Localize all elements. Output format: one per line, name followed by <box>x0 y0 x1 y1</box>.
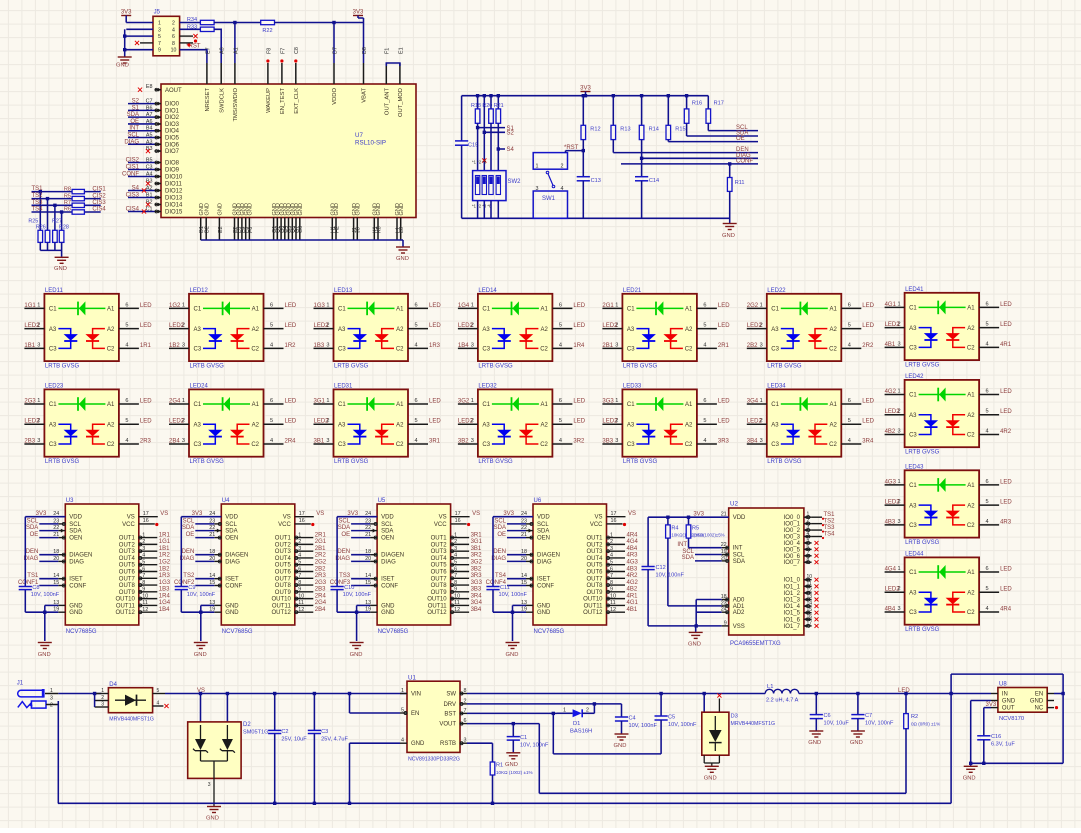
svg-text:A1: A1 <box>541 402 549 408</box>
svg-text:9: 9 <box>142 587 145 593</box>
svg-text:F1: F1 <box>385 48 391 54</box>
svg-text:SDA: SDA <box>127 112 139 118</box>
svg-text:7: 7 <box>454 573 457 579</box>
svg-text:C3: C3 <box>771 347 779 353</box>
svg-text:3: 3 <box>454 546 457 552</box>
svg-text:13: 13 <box>807 594 813 600</box>
svg-text:OUT1: OUT1 <box>586 536 603 542</box>
svg-text:6: 6 <box>559 398 562 404</box>
svg-text:LED42: LED42 <box>905 374 924 380</box>
svg-text:AOUT: AOUT <box>165 88 182 94</box>
svg-text:LRTB GVSG: LRTB GVSG <box>767 459 802 465</box>
svg-text:OE: OE <box>186 532 195 538</box>
svg-text:6: 6 <box>172 34 175 40</box>
svg-text:2R1: 2R1 <box>315 532 327 538</box>
svg-text:7: 7 <box>464 708 467 714</box>
svg-text:LRTB GVSG: LRTB GVSG <box>190 459 225 465</box>
svg-text:OUT8: OUT8 <box>431 583 448 589</box>
svg-text:3B2: 3B2 <box>458 439 469 445</box>
svg-text:11: 11 <box>610 600 616 606</box>
svg-text:VOUT: VOUT <box>439 722 456 728</box>
svg-text:C9: C9 <box>188 585 195 591</box>
svg-text:4: 4 <box>270 342 273 348</box>
svg-text:5: 5 <box>703 418 706 424</box>
svg-text:3V3: 3V3 <box>580 86 591 92</box>
svg-text:DIAG: DIAG <box>225 559 240 565</box>
svg-text:4: 4 <box>414 342 417 348</box>
svg-text:LED34: LED34 <box>767 383 786 389</box>
svg-text:GND: GND <box>1002 699 1016 705</box>
svg-text:GND: GND <box>722 233 735 239</box>
svg-text:A1: A1 <box>541 307 549 313</box>
svg-text:LRTB GVSG: LRTB GVSG <box>45 364 80 370</box>
svg-text:LRTB GVSG: LRTB GVSG <box>623 364 658 370</box>
svg-text:R4: R4 <box>671 526 678 532</box>
svg-text:10: 10 <box>610 593 616 599</box>
svg-text:6: 6 <box>986 566 989 572</box>
svg-text:LED: LED <box>1000 409 1012 415</box>
svg-text:A3: A3 <box>49 327 57 333</box>
svg-text:8: 8 <box>464 688 467 694</box>
svg-text:10: 10 <box>171 48 177 54</box>
svg-text:2B3: 2B3 <box>315 587 326 593</box>
svg-text:3: 3 <box>298 546 301 552</box>
svg-text:1B1: 1B1 <box>24 343 35 349</box>
svg-text:LED: LED <box>140 419 152 425</box>
svg-text:4: 4 <box>157 700 160 706</box>
svg-text:INT: INT <box>733 546 743 552</box>
svg-text:1: 1 <box>807 512 810 518</box>
svg-text:4R3: 4R3 <box>1000 519 1012 525</box>
svg-text:DIO0: DIO0 <box>165 102 180 108</box>
svg-text:IN: IN <box>1002 692 1008 698</box>
svg-text:6: 6 <box>125 302 128 308</box>
svg-text:3: 3 <box>897 606 900 612</box>
svg-text:5: 5 <box>986 586 989 592</box>
svg-text:6: 6 <box>464 718 467 724</box>
svg-text:NCV891330PD33R2G: NCV891330PD33R2G <box>408 757 460 763</box>
svg-text:6: 6 <box>848 302 851 308</box>
svg-text:OUT4: OUT4 <box>275 556 292 562</box>
svg-text:IO1_3: IO1_3 <box>784 598 801 604</box>
svg-text:R22: R22 <box>262 28 272 34</box>
svg-text:OUT9: OUT9 <box>275 590 292 596</box>
svg-text:TS2: TS2 <box>183 573 195 579</box>
svg-text:5: 5 <box>986 409 989 415</box>
svg-text:OEN: OEN <box>537 536 550 542</box>
svg-text:GND: GND <box>537 603 551 609</box>
svg-text:OUT3: OUT3 <box>275 549 292 555</box>
svg-text:C1: C1 <box>338 402 346 408</box>
svg-text:WAKEUP: WAKEUP <box>266 88 272 113</box>
svg-text:A2: A2 <box>541 327 549 333</box>
svg-text:6: 6 <box>703 302 706 308</box>
svg-text:TS1: TS1 <box>824 512 836 518</box>
svg-text:3V3: 3V3 <box>353 10 364 16</box>
svg-text:LED: LED <box>1000 587 1012 593</box>
svg-text:1G4: 1G4 <box>159 600 171 606</box>
svg-text:SCL: SCL <box>381 522 393 528</box>
svg-text:1: 1 <box>326 398 329 404</box>
svg-text:5: 5 <box>559 323 562 329</box>
svg-text:OUT5: OUT5 <box>586 563 603 569</box>
svg-text:LED: LED <box>718 323 730 329</box>
svg-text:LRTB GVSG: LRTB GVSG <box>190 364 225 370</box>
svg-text:S4: S4 <box>507 147 515 153</box>
svg-text:C1: C1 <box>909 483 917 489</box>
svg-text:U6: U6 <box>534 498 542 504</box>
svg-text:TS4: TS4 <box>32 207 44 213</box>
svg-text:2B4: 2B4 <box>169 439 180 445</box>
svg-text:SCL: SCL <box>127 133 139 139</box>
svg-text:R12: R12 <box>590 126 600 132</box>
svg-text:1: 1 <box>142 532 145 538</box>
svg-text:C2: C2 <box>967 346 975 352</box>
svg-text:OUT9: OUT9 <box>119 590 136 596</box>
svg-text:B3: B3 <box>146 146 153 152</box>
svg-text:11: 11 <box>807 581 812 587</box>
svg-text:ISET: ISET <box>69 577 83 583</box>
svg-text:OE: OE <box>130 119 139 125</box>
svg-text:SCL: SCL <box>494 518 506 524</box>
svg-text:4: 4 <box>986 519 989 525</box>
svg-text:OUT4: OUT4 <box>586 556 603 562</box>
svg-text:17: 17 <box>455 511 461 517</box>
svg-text:GND: GND <box>69 603 83 609</box>
svg-text:1: 1 <box>471 398 474 404</box>
svg-text:3B4: 3B4 <box>471 607 482 613</box>
svg-text:10V, 100nF: 10V, 100nF <box>629 723 658 729</box>
svg-text:OE: OE <box>736 136 745 142</box>
svg-text:12: 12 <box>454 607 460 613</box>
svg-text:A2: A2 <box>252 327 260 333</box>
svg-text:4R2: 4R2 <box>627 573 639 579</box>
svg-text:OUT1: OUT1 <box>431 536 448 542</box>
svg-text:C16: C16 <box>991 734 1001 740</box>
svg-text:DIAGEN: DIAGEN <box>381 553 404 559</box>
svg-text:4G1: 4G1 <box>627 600 639 606</box>
svg-text:PCA9655EMTTXG: PCA9655EMTTXG <box>730 641 781 647</box>
svg-text:NRESET: NRESET <box>205 88 211 112</box>
svg-text:5: 5 <box>401 708 404 714</box>
svg-text:E8: E8 <box>146 84 153 90</box>
svg-text:A3: A3 <box>909 503 917 509</box>
svg-text:1G2: 1G2 <box>169 303 181 309</box>
svg-text:LED: LED <box>573 323 585 329</box>
svg-text:SDA: SDA <box>494 525 506 531</box>
svg-text:LRTB GVSG: LRTB GVSG <box>905 450 940 456</box>
svg-text:4: 4 <box>172 27 175 33</box>
svg-text:4: 4 <box>125 438 128 444</box>
svg-text:LED: LED <box>429 303 441 309</box>
svg-text:C11: C11 <box>500 585 510 591</box>
svg-text:14: 14 <box>807 601 813 607</box>
svg-text:C1: C1 <box>49 402 57 408</box>
svg-text:A3: A3 <box>194 422 202 428</box>
svg-text:VS: VS <box>594 515 602 521</box>
svg-text:3G1: 3G1 <box>471 539 483 545</box>
svg-text:D8: D8 <box>362 47 368 54</box>
svg-text:3R3: 3R3 <box>471 573 483 579</box>
svg-text:OUT6: OUT6 <box>431 570 448 576</box>
svg-text:DIAG: DIAG <box>381 559 396 565</box>
svg-text:3R1: 3R1 <box>471 532 483 538</box>
svg-text:9: 9 <box>158 48 161 54</box>
svg-text:DIO11: DIO11 <box>165 182 183 188</box>
svg-text:S2: S2 <box>132 99 140 105</box>
svg-text:K8: K8 <box>376 226 382 233</box>
svg-text:1R2: 1R2 <box>159 553 171 559</box>
svg-text:1: 1 <box>897 479 900 485</box>
svg-text:GND: GND <box>850 740 863 746</box>
svg-text:D2: D2 <box>243 722 251 728</box>
svg-text:GND: GND <box>356 203 362 215</box>
svg-text:C2: C2 <box>967 610 975 616</box>
svg-text:5: 5 <box>848 418 851 424</box>
svg-text:IO1_0: IO1_0 <box>784 578 801 584</box>
svg-text:IO0_1: IO0_1 <box>784 522 801 528</box>
svg-text:C3: C3 <box>321 729 328 735</box>
svg-text:2: 2 <box>561 163 564 169</box>
svg-text:SCL: SCL <box>225 522 237 528</box>
svg-text:6.3V, 1uF: 6.3V, 1uF <box>991 742 1015 748</box>
svg-text:OUT10: OUT10 <box>427 597 447 603</box>
svg-text:7: 7 <box>142 573 145 579</box>
svg-text:DIAGEN: DIAGEN <box>225 553 248 559</box>
svg-text:6: 6 <box>125 398 128 404</box>
svg-text:L8: L8 <box>399 227 405 233</box>
svg-text:1R4: 1R4 <box>159 593 171 599</box>
svg-text:GND: GND <box>688 642 701 648</box>
svg-text:EN: EN <box>411 711 419 717</box>
svg-text:1: 1 <box>298 532 301 538</box>
svg-text:4: 4 <box>703 438 706 444</box>
svg-text:C3: C3 <box>338 347 346 353</box>
svg-text:OUT3: OUT3 <box>119 549 136 555</box>
svg-text:1: 1 <box>37 302 40 308</box>
svg-text:BST: BST <box>444 711 456 717</box>
svg-text:6: 6 <box>807 544 810 550</box>
svg-text:GND: GND <box>116 63 129 69</box>
svg-text:DIO1: DIO1 <box>165 108 180 114</box>
svg-text:16: 16 <box>143 518 149 524</box>
svg-text:TMS/SWDIO: TMS/SWDIO <box>233 88 239 122</box>
svg-text:LRTB GVSG: LRTB GVSG <box>905 627 940 633</box>
svg-text:IO0_6: IO0_6 <box>784 554 801 560</box>
svg-text:R2: R2 <box>911 714 918 720</box>
svg-text:25V, 4.7uF: 25V, 4.7uF <box>321 736 348 742</box>
svg-text:LRTB GVSG: LRTB GVSG <box>767 364 802 370</box>
svg-text:2: 2 <box>50 703 53 709</box>
svg-text:2: 2 <box>101 695 104 701</box>
svg-text:A2: A2 <box>107 422 115 428</box>
svg-text:1: 1 <box>401 688 404 694</box>
svg-text:A3: A3 <box>771 327 779 333</box>
svg-text:LRTB GVSG: LRTB GVSG <box>623 459 658 465</box>
svg-text:C4: C4 <box>629 715 636 721</box>
svg-text:C2: C2 <box>967 433 975 439</box>
svg-text:LED: LED <box>1000 479 1012 485</box>
svg-text:A2: A2 <box>967 503 975 509</box>
svg-text:CIS3: CIS3 <box>126 193 140 199</box>
svg-text:4G2: 4G2 <box>885 389 897 395</box>
svg-text:EN: EN <box>1035 692 1043 698</box>
svg-text:2B1: 2B1 <box>602 343 613 349</box>
svg-text:SM05T1G: SM05T1G <box>243 730 269 736</box>
svg-text:C2: C2 <box>540 442 548 448</box>
svg-text:J8: J8 <box>356 227 362 233</box>
svg-text:R13: R13 <box>620 126 630 132</box>
svg-text:C3: C3 <box>482 347 490 353</box>
svg-text:LED2: LED2 <box>885 587 901 593</box>
svg-text:A2: A2 <box>967 326 975 332</box>
svg-text:1: 1 <box>897 566 900 572</box>
svg-text:1G3: 1G3 <box>159 580 171 586</box>
svg-text:C3: C3 <box>627 347 635 353</box>
svg-text:4G4: 4G4 <box>627 539 639 545</box>
svg-text:C3: C3 <box>49 347 57 353</box>
svg-text:1: 1 <box>563 707 566 713</box>
svg-text:LED: LED <box>140 303 152 309</box>
svg-text:GND: GND <box>204 203 210 215</box>
svg-text:GND: GND <box>381 610 395 616</box>
svg-text:C3: C3 <box>482 442 490 448</box>
svg-text:10KΩ(1002)±5%: 10KΩ(1002)±5% <box>692 533 725 538</box>
svg-text:4: 4 <box>848 342 851 348</box>
svg-text:8: 8 <box>610 580 613 586</box>
svg-text:OUT6: OUT6 <box>586 570 603 576</box>
svg-text:IO1_5: IO1_5 <box>784 611 801 617</box>
svg-text:2G4: 2G4 <box>315 600 327 606</box>
svg-text:8: 8 <box>172 41 175 47</box>
svg-text:C3: C3 <box>909 433 917 439</box>
svg-text:2R4: 2R4 <box>315 593 327 599</box>
svg-text:VCC: VCC <box>590 522 603 528</box>
svg-text:OUT_MOD: OUT_MOD <box>398 88 404 117</box>
svg-text:C1: C1 <box>627 402 635 408</box>
svg-text:C2: C2 <box>540 347 548 353</box>
svg-text:3G3: 3G3 <box>602 399 614 405</box>
svg-text:DIO6: DIO6 <box>165 142 180 148</box>
svg-text:2: 2 <box>454 539 457 545</box>
svg-text:5: 5 <box>848 323 851 329</box>
svg-text:8: 8 <box>298 580 301 586</box>
svg-text:GND: GND <box>376 203 382 215</box>
svg-text:4: 4 <box>125 342 128 348</box>
svg-text:OE: OE <box>30 532 39 538</box>
svg-text:10: 10 <box>142 593 148 599</box>
svg-text:5: 5 <box>807 537 810 543</box>
svg-text:IO1_4: IO1_4 <box>784 604 801 610</box>
svg-text:NCV7685G: NCV7685G <box>534 629 565 635</box>
svg-text:C13: C13 <box>591 178 601 184</box>
svg-text:DIAG: DIAG <box>69 559 84 565</box>
svg-text:3: 3 <box>208 782 211 788</box>
svg-text:AD0: AD0 <box>733 598 745 604</box>
svg-text:LED2: LED2 <box>885 500 901 506</box>
svg-text:U3: U3 <box>66 498 74 504</box>
svg-text:OUT8: OUT8 <box>119 583 136 589</box>
svg-text:4G3: 4G3 <box>885 479 897 485</box>
svg-text:5: 5 <box>157 688 160 694</box>
svg-text:A2: A2 <box>396 422 404 428</box>
svg-text:OUT3: OUT3 <box>431 549 448 555</box>
svg-text:3: 3 <box>615 342 618 348</box>
svg-text:3: 3 <box>807 525 810 531</box>
svg-text:5: 5 <box>414 323 417 329</box>
svg-text:4R4: 4R4 <box>627 532 639 538</box>
svg-text:TS3: TS3 <box>32 200 44 206</box>
svg-text:CONF: CONF <box>69 584 86 590</box>
svg-text:A3: A3 <box>627 422 635 428</box>
svg-text:1: 1 <box>37 398 40 404</box>
svg-text:GND: GND <box>505 762 518 768</box>
svg-text:4G3: 4G3 <box>627 560 639 566</box>
svg-text:TS3: TS3 <box>824 525 836 531</box>
svg-text:C2: C2 <box>685 442 693 448</box>
svg-text:LED2: LED2 <box>602 419 618 425</box>
svg-text:C3: C3 <box>627 442 635 448</box>
svg-text:OUT10: OUT10 <box>583 597 603 603</box>
svg-text:LRTB GVSG: LRTB GVSG <box>334 459 369 465</box>
svg-text:U2: U2 <box>730 501 738 508</box>
svg-text:4: 4 <box>703 342 706 348</box>
svg-text:9: 9 <box>724 620 727 626</box>
svg-text:17: 17 <box>611 511 617 517</box>
svg-text:6: 6 <box>703 398 706 404</box>
svg-text:GND: GND <box>381 603 395 609</box>
svg-text:10V, 10uF: 10V, 10uF <box>824 721 850 727</box>
svg-text:C8: C8 <box>294 47 300 54</box>
svg-text:A1: A1 <box>396 307 404 313</box>
svg-text:4B1: 4B1 <box>627 607 638 613</box>
svg-text:TS2: TS2 <box>32 193 44 199</box>
svg-text:LED: LED <box>140 399 152 405</box>
svg-text:6: 6 <box>270 398 273 404</box>
svg-text:LRTB GVSG: LRTB GVSG <box>45 459 80 465</box>
svg-text:LED: LED <box>862 303 874 309</box>
svg-text:LED24: LED24 <box>190 383 209 389</box>
svg-text:9: 9 <box>610 587 613 593</box>
svg-text:5: 5 <box>270 418 273 424</box>
svg-text:C1: C1 <box>627 307 635 313</box>
svg-text:3G4: 3G4 <box>747 399 759 405</box>
svg-text:GND: GND <box>206 816 219 822</box>
svg-text:OUT10: OUT10 <box>115 597 135 603</box>
svg-text:2B1: 2B1 <box>315 546 326 552</box>
svg-text:DIAGEN: DIAGEN <box>537 553 560 559</box>
svg-text:1R2: 1R2 <box>285 343 297 349</box>
svg-text:A3: A3 <box>338 422 346 428</box>
svg-text:GND: GND <box>225 603 239 609</box>
svg-text:A3: A3 <box>194 327 202 333</box>
svg-text:3: 3 <box>536 186 539 192</box>
svg-text:VDDO: VDDO <box>332 88 338 105</box>
svg-text:VDD: VDD <box>381 515 394 521</box>
svg-text:OUT11: OUT11 <box>428 603 448 609</box>
svg-text:1: 1 <box>454 532 457 538</box>
svg-text:LRTB GVSG: LRTB GVSG <box>478 364 513 370</box>
svg-text:OUT2: OUT2 <box>119 542 136 548</box>
svg-text:LED: LED <box>429 399 441 405</box>
svg-text:G8: G8 <box>298 226 304 233</box>
svg-text:1R1: 1R1 <box>140 343 152 349</box>
svg-text:SDA: SDA <box>682 555 694 561</box>
svg-text:A2: A2 <box>252 422 260 428</box>
svg-text:*1 *2 *3 *6: *1 *2 *3 *6 <box>472 204 492 209</box>
svg-text:2B2: 2B2 <box>315 566 326 572</box>
svg-text:C6: C6 <box>824 713 831 719</box>
